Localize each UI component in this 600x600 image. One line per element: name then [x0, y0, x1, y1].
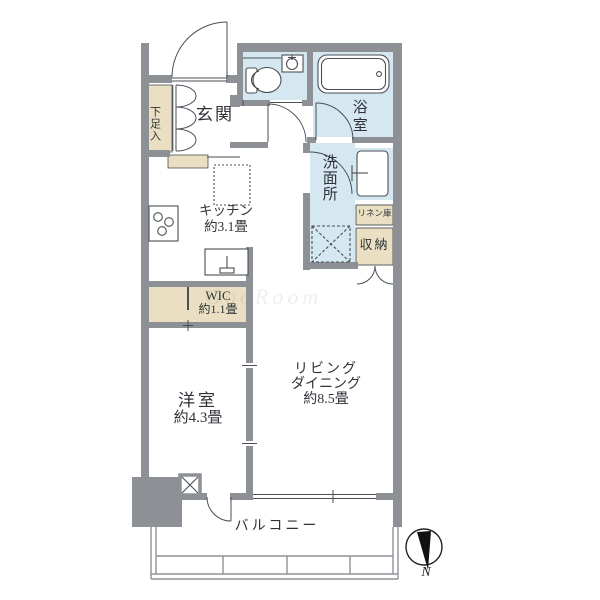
- wall-washroom-left: [303, 193, 310, 270]
- balcony-label: バルコニー: [222, 520, 332, 535]
- floorplan-page: 下足入 玄関 浴室 洗面所 キッチン 約3.1畳 リネン庫 収納 WIC 約1.…: [0, 0, 600, 600]
- kitchen-size: 約3.1畳: [188, 220, 264, 234]
- hand-basin-icon: [282, 55, 303, 72]
- sink-icon: [205, 249, 248, 275]
- kitchen-label: キッチン: [188, 204, 264, 218]
- wall-top: [237, 43, 402, 52]
- living-dining-size: 約8.5畳: [290, 393, 362, 408]
- wall-toilet-bottom-left: [237, 100, 270, 106]
- entry-step: [168, 155, 208, 168]
- wall-genkan-top-left: [141, 75, 172, 83]
- wall-bath-bottom-left: [307, 137, 316, 143]
- shoe-cabinet-doors: [173, 85, 196, 151]
- western-room-size: 約4.3畳: [154, 411, 242, 427]
- stove-icon: [149, 206, 178, 241]
- wall-bottom-b: [230, 493, 256, 500]
- pillar: [132, 477, 182, 527]
- pipe-space-icon: [180, 475, 200, 495]
- watermark: GooRoom: [205, 285, 425, 308]
- wall-room-partition: [246, 328, 253, 493]
- wall-bath-bottom-right: [352, 137, 393, 143]
- bathroom-label: 浴室: [350, 99, 366, 135]
- living-dining-label-1: リビング: [288, 363, 364, 378]
- balcony-door-west-room: [207, 497, 231, 521]
- fridge-space: [214, 165, 250, 205]
- wall-wic-bottom: [141, 322, 253, 328]
- wall-bottom-c: [376, 493, 402, 500]
- hall-door: [268, 104, 306, 142]
- bathtub-icon: [318, 55, 389, 93]
- wall-toilet-bottom-right: [302, 100, 313, 106]
- entry-door: [172, 22, 227, 81]
- genkan-label: 玄関: [196, 106, 234, 124]
- western-room-label: 洋室: [160, 392, 236, 410]
- wall-genkan-bottom: [141, 150, 170, 157]
- storage-label: 収納: [356, 238, 393, 252]
- compass-north-label: N: [415, 566, 437, 581]
- shoe-cabinet-label: 下足入: [148, 106, 160, 142]
- linen-closet-label: リネン庫: [356, 209, 393, 218]
- wall-washroom-left-top: [303, 143, 310, 153]
- wall-washroom-bottom: [303, 262, 358, 269]
- wall-toilet-bath-divider: [307, 52, 313, 106]
- wall-hall-south: [230, 142, 268, 148]
- washroom-label: 洗面所: [320, 154, 336, 202]
- storage-doors: [357, 266, 393, 284]
- balcony-railing: [151, 527, 398, 579]
- washbasin-icon: [352, 151, 388, 196]
- living-dining-label-2: ダイニング: [284, 378, 368, 393]
- compass-icon: [406, 529, 442, 570]
